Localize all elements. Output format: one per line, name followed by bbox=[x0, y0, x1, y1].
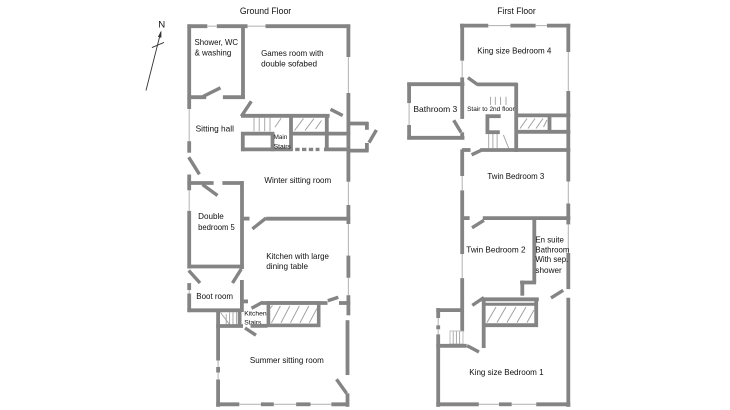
svg-text:double sofabed: double sofabed bbox=[261, 58, 317, 68]
svg-text:King size Bedroom 4: King size Bedroom 4 bbox=[477, 45, 551, 55]
svg-text:Twin Bedroom 2: Twin Bedroom 2 bbox=[466, 244, 526, 254]
svg-text:Main: Main bbox=[274, 134, 288, 141]
svg-text:Kitchen with large: Kitchen with large bbox=[266, 251, 329, 261]
svg-text:Sitting hall: Sitting hall bbox=[196, 124, 235, 134]
svg-text:Stair to 2nd floor: Stair to 2nd floor bbox=[467, 106, 515, 113]
svg-text:Ground Floor: Ground Floor bbox=[240, 6, 292, 17]
svg-text:bedroom 5: bedroom 5 bbox=[198, 222, 235, 232]
svg-text:shower: shower bbox=[535, 265, 562, 275]
svg-text:Games room with: Games room with bbox=[261, 48, 324, 58]
svg-text:Shower, WC: Shower, WC bbox=[195, 37, 239, 47]
svg-text:N: N bbox=[158, 20, 165, 31]
svg-text:Stairs: Stairs bbox=[274, 144, 292, 151]
svg-text:& washing: & washing bbox=[195, 47, 232, 57]
svg-text:En suite: En suite bbox=[535, 234, 564, 244]
svg-text:With sep.: With sep. bbox=[535, 254, 568, 264]
svg-text:Double: Double bbox=[198, 211, 224, 221]
svg-text:Bathroom: Bathroom bbox=[535, 244, 569, 254]
svg-text:Bathroom 3: Bathroom 3 bbox=[413, 104, 457, 114]
svg-text:Winter sitting room: Winter sitting room bbox=[264, 175, 331, 185]
svg-text:Twin Bedroom 3: Twin Bedroom 3 bbox=[487, 171, 544, 181]
svg-text:Boot room: Boot room bbox=[196, 291, 233, 301]
svg-text:First Floor: First Floor bbox=[497, 6, 536, 17]
svg-text:dining table: dining table bbox=[266, 261, 308, 271]
svg-text:Summer sitting room: Summer sitting room bbox=[250, 355, 324, 365]
svg-text:King size Bedroom 1: King size Bedroom 1 bbox=[469, 367, 544, 377]
svg-text:Kitchen: Kitchen bbox=[244, 310, 267, 317]
